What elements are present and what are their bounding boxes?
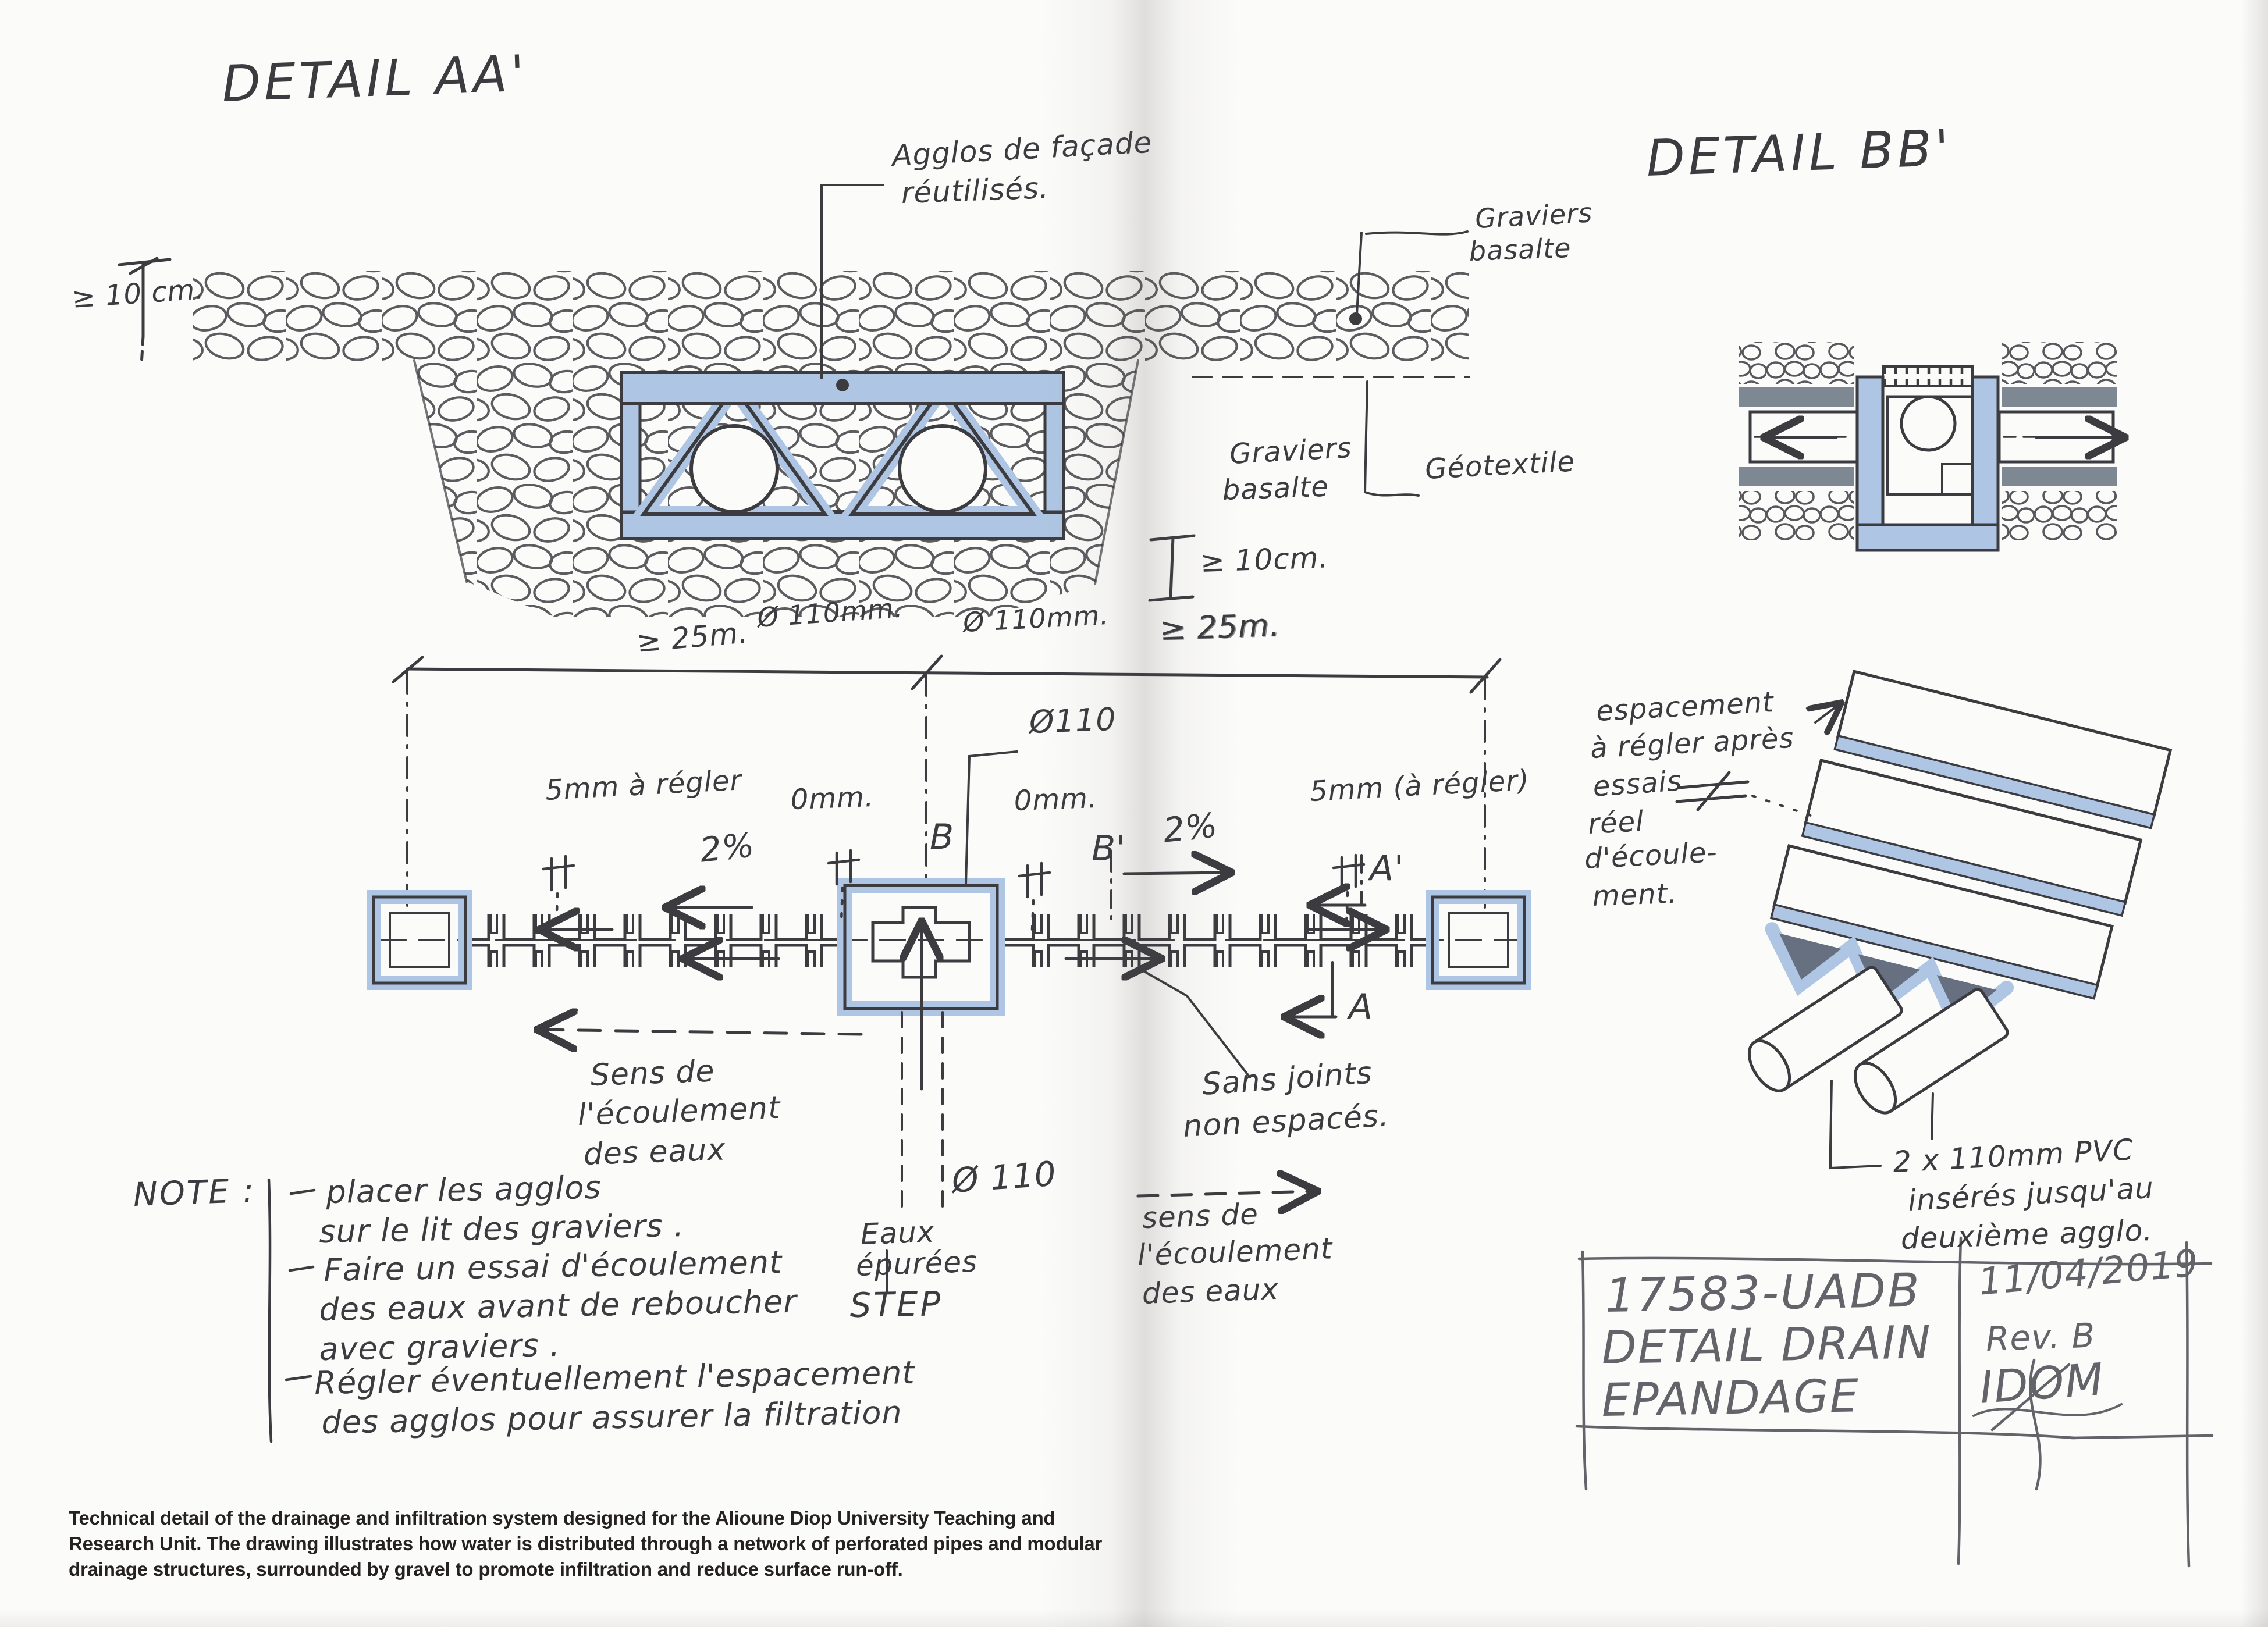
spacing-note-line: d'écoule- <box>1584 838 1718 874</box>
agglos-label: réutilisés. <box>901 173 1050 208</box>
flow-right-label: sens de <box>1142 1199 1259 1233</box>
note-heading: NOTE : <box>133 1174 256 1213</box>
plan-dia-bottom-label: Ø 110 <box>951 1156 1058 1198</box>
section-b-prime-label: B' <box>1092 831 1126 867</box>
note-line: placer les agglos <box>326 1172 602 1209</box>
joints-leader <box>1138 968 1250 1077</box>
caption-line: Research Unit. The drawing illustrates h… <box>69 1531 1102 1557</box>
spacing-note-line: réel <box>1587 807 1645 839</box>
gap-zero-label: 0mm. <box>790 782 875 814</box>
flow-left-label: l'écoulement <box>577 1092 781 1131</box>
graviers-basalte-top-label: basalte <box>1469 234 1572 265</box>
plan-dia-top-label: Ø110 <box>1029 703 1117 739</box>
section-a-label: A <box>1349 989 1373 1026</box>
sketchbook-spread: DETAIL AA' Agglos de façade réutilisés. … <box>0 0 2268 1627</box>
section-bb-drawing <box>1739 342 2123 550</box>
gap-zero-label: 0mm. <box>1014 784 1098 816</box>
dim-spacing-right-label: ≥ 25m. <box>1159 609 1281 646</box>
note-line: des eaux avant de reboucher <box>319 1286 797 1327</box>
source-label: épurées <box>855 1247 978 1281</box>
caption-line: Technical detail of the drainage and inf… <box>69 1505 1055 1531</box>
dia-top-leader <box>966 752 1017 884</box>
slope-left-label: 2% <box>698 827 756 868</box>
slope-right-label: 2% <box>1161 807 1220 848</box>
flow-left-label: Sens de <box>590 1056 715 1092</box>
section-b-label: B <box>930 819 954 856</box>
dim-cover-right-label: ≥ 10cm. <box>1200 542 1329 577</box>
flow-right-label: des eaux <box>1142 1274 1279 1309</box>
note-rules <box>269 1180 314 1441</box>
detail-aa-title: DETAIL AA' <box>221 48 529 111</box>
titleblock-rev: Rev. B <box>1985 1318 2096 1357</box>
geotextile-label: Géotextile <box>1424 447 1576 485</box>
titleblock-drawing-line1: DETAIL DRAIN <box>1601 1319 1932 1373</box>
titleblock-drawing-line2: EPANDAGE <box>1601 1373 1860 1425</box>
flow-arrow-right-icon <box>1138 1191 1315 1196</box>
titleblock-firm-signature: IDOM <box>1978 1356 2106 1411</box>
note-line: Faire un essai d'écoulement <box>324 1246 783 1287</box>
source-label: STEP <box>849 1286 943 1323</box>
source-label: Eaux <box>860 1217 935 1250</box>
titleblock-project: 17583-UADB <box>1605 1266 1922 1320</box>
flow-left-label: des eaux <box>583 1134 726 1170</box>
spacing-note-line: ment. <box>1592 879 1677 911</box>
graviers-basalte-mid-label: basalte <box>1222 472 1329 505</box>
note-line: sur le lit des graviers . <box>319 1209 685 1249</box>
spacing-note-line: essais <box>1592 766 1683 802</box>
detail-bb-title: DETAIL BB' <box>1645 122 1953 186</box>
dim-cover-left-marks <box>119 258 170 365</box>
dim-cover-right-marks <box>1150 536 1194 600</box>
section-a-prime-label: A' <box>1370 850 1405 887</box>
graviers-basalte-top-label: Graviers <box>1474 198 1593 233</box>
flow-right-label: l'écoulement <box>1137 1233 1333 1270</box>
caption-line: drainage structures, surrounded by grave… <box>69 1557 903 1582</box>
flow-arrow-left-icon <box>540 1030 861 1034</box>
slope-arrow-right-icon <box>1124 873 1229 874</box>
graviers-basalte-mid-label: Graviers <box>1229 433 1353 469</box>
pipe-dia-label: Ø 110mm. <box>962 601 1110 636</box>
